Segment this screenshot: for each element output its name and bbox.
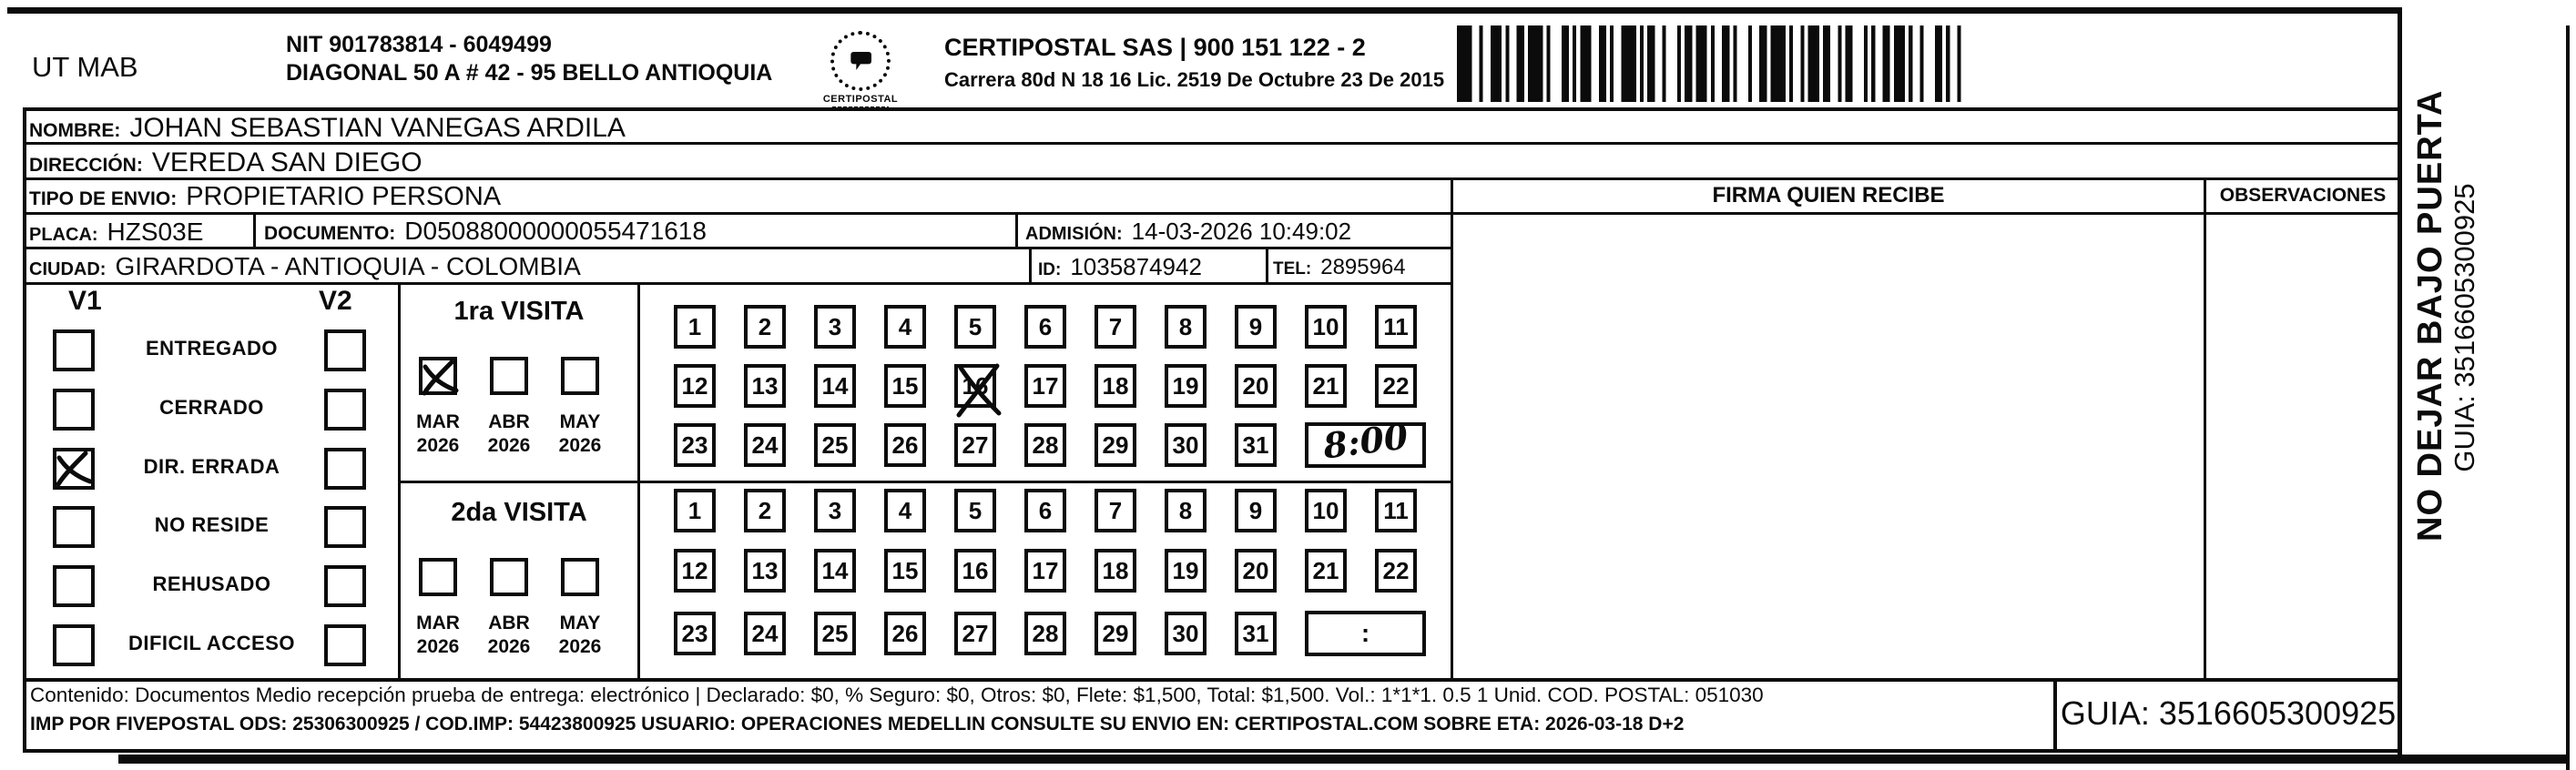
side-note: NO DEJAR BAJO PUERTA GUIA: 3516605300925 <box>2412 114 2494 542</box>
day-box-visit1-11: 11 <box>1375 305 1417 349</box>
day-box-visit1-31: 31 <box>1235 423 1277 467</box>
documento-label: DOCUMENTO: <box>264 223 395 245</box>
day-box-visit2-24: 24 <box>744 612 786 655</box>
barcode-bar <box>1946 25 1950 102</box>
direccion-value: VEREDA SAN DIEGO <box>152 147 423 178</box>
observaciones-area <box>2206 215 2398 678</box>
month-option-visit2-mar: MAR2026 <box>410 558 466 656</box>
day-box-visit2-1: 1 <box>674 489 716 532</box>
barcode-bar <box>1919 25 1923 102</box>
barcode-bar <box>1733 25 1736 102</box>
month-checkbox-visit2-abr <box>490 558 528 596</box>
company-block: CERTIPOSTAL SAS | 900 151 122 - 2 Carrer… <box>944 33 1444 93</box>
visit-title-2da: 2da VISITA <box>401 498 637 528</box>
barcode-bar <box>1546 25 1550 102</box>
x-stroke <box>52 447 96 491</box>
day-box-visit1-10: 10 <box>1305 305 1347 349</box>
placa-field: PLACA: HZS03E <box>29 218 203 247</box>
top-scan-line <box>7 7 2402 14</box>
day-grid-2da: 1234567891011121314151617181920212223242… <box>640 481 1451 678</box>
id-value: 1035874942 <box>1070 253 1202 281</box>
tipo-envio-label: TIPO DE ENVIO: <box>29 188 177 210</box>
tel-label: TEL: <box>1273 259 1311 279</box>
handwritten-x-mark <box>52 447 96 495</box>
month-checkbox-visit1-abr <box>490 357 528 395</box>
day-box-visit2-28: 28 <box>1024 612 1066 655</box>
ciudad-divider <box>1029 247 1032 283</box>
barcode-bar <box>1695 25 1706 102</box>
v1-column-header: V1 <box>68 286 102 317</box>
month-checkbox-visit2-may <box>561 558 599 596</box>
sender-code-text: UT MAB <box>32 51 138 84</box>
observaciones-header: OBSERVACIONES <box>2206 185 2399 207</box>
checkbox-v2-cerrado <box>324 389 366 431</box>
month-option-visit1-abr: ABR2026 <box>481 357 537 455</box>
barcode-bar <box>1599 25 1606 102</box>
admision-label: ADMISIÓN: <box>1025 224 1123 245</box>
documento-field: DOCUMENTO: D05088000000055471618 <box>264 217 707 246</box>
status-label-dir-errada: DIR. ERRADA <box>100 446 323 488</box>
day-box-visit2-5: 5 <box>954 489 996 532</box>
day-box-visit2-19: 19 <box>1165 549 1207 593</box>
visit-title-1ra: 1ra VISITA <box>401 297 637 327</box>
barcode-bar <box>1580 25 1591 102</box>
row-line-4 <box>23 247 1451 249</box>
checkbox-v1-cerrado <box>53 389 95 431</box>
guia-number-box: GUIA: 3516605300925 <box>2057 678 2399 749</box>
tipo-envio-value: PROPIETARIO PERSONA <box>186 182 501 212</box>
direccion-field: DIRECCIÓN: VEREDA SAN DIEGO <box>29 147 423 178</box>
day-box-visit1-1: 1 <box>674 305 716 349</box>
barcode <box>1457 25 1976 102</box>
month-label: ABR <box>481 412 537 431</box>
day-box-visit2-9: 9 <box>1235 489 1277 532</box>
day-box-visit1-8: 8 <box>1165 305 1207 349</box>
barcode-bar <box>1562 25 1569 102</box>
checkbox-v2-dir-errada <box>324 448 366 490</box>
barcode-bar <box>1882 25 1889 102</box>
nombre-label: NOMBRE: <box>29 120 120 142</box>
ciudad-label: CIUDAD: <box>29 259 106 280</box>
month-label: MAR <box>410 613 466 633</box>
company-name: CERTIPOSTAL SAS | 900 151 122 - 2 <box>944 33 1444 63</box>
x-stroke <box>418 356 462 400</box>
sender-code: UT MAB <box>32 51 138 84</box>
day-box-visit2-4: 4 <box>884 489 926 532</box>
barcode-bar <box>1480 25 1483 102</box>
month-year: 2026 <box>552 637 608 656</box>
barcode-bar <box>1807 25 1818 102</box>
footer-top-line <box>23 678 2401 682</box>
day-box-visit1-19: 19 <box>1165 364 1207 408</box>
barcode-bar <box>1640 25 1644 102</box>
day-box-visit1-4: 4 <box>884 305 926 349</box>
day-box-visit2-16: 16 <box>954 549 996 593</box>
day-box-visit2-3: 3 <box>814 489 856 532</box>
sender-nit: NIT 901783814 - 6049499 <box>286 31 772 59</box>
id-label: ID: <box>1038 260 1061 280</box>
documento-value: D05088000000055471618 <box>404 217 707 246</box>
logo-glyph <box>842 43 879 79</box>
barcode-bar <box>1573 25 1576 102</box>
day-box-visit1-24: 24 <box>744 423 786 467</box>
day-box-visit1-27: 27 <box>954 423 996 467</box>
day-cross-mark <box>950 360 1008 425</box>
day-box-visit2-14: 14 <box>814 549 856 593</box>
firma-quien-recibe-header: FIRMA QUIEN RECIBE <box>1453 183 2204 208</box>
documento-divider <box>1015 212 1018 248</box>
status-row-rehusado: REHUSADO <box>23 563 398 607</box>
table-bottom-border <box>23 749 2401 753</box>
status-row-cerrado: CERRADO <box>23 387 398 431</box>
day-box-visit1-15: 15 <box>884 364 926 408</box>
day-box-visit2-17: 17 <box>1024 549 1066 593</box>
month-option-visit1-mar: MAR2026 <box>410 357 466 455</box>
status-label-entregado: ENTREGADO <box>100 328 323 370</box>
day-box-visit2-31: 31 <box>1235 612 1277 655</box>
month-checkbox-visit1-mar <box>419 357 457 395</box>
month-label: MAY <box>552 412 608 431</box>
barcode-bar <box>1610 25 1614 102</box>
checkbox-v2-rehusado <box>324 565 366 607</box>
barcode-bar <box>1838 25 1841 102</box>
day-box-visit2-15: 15 <box>884 549 926 593</box>
day-box-visit1-29: 29 <box>1095 423 1136 467</box>
barcode-bar <box>1894 25 1905 102</box>
barcode-bar <box>1845 25 1852 102</box>
barcode-bar <box>1871 25 1875 102</box>
day-box-visit1-6: 6 <box>1024 305 1066 349</box>
day-box-visit1-7: 7 <box>1095 305 1136 349</box>
side-note-warning: NO DEJAR BAJO PUERTA <box>2412 114 2449 542</box>
day-box-visit2-20: 20 <box>1235 549 1277 593</box>
direccion-label: DIRECCIÓN: <box>29 155 143 177</box>
day-box-visit1-13: 13 <box>744 364 786 408</box>
status-row-dir-errada: DIR. ERRADA <box>23 446 398 490</box>
day-box-visit1-21: 21 <box>1305 364 1347 408</box>
day-box-visit1-9: 9 <box>1235 305 1277 349</box>
barcode-bar <box>1800 25 1804 102</box>
month-checkbox-visit1-may <box>561 357 599 395</box>
admision-field: ADMISIÓN: 14-03-2026 10:49:02 <box>1025 218 1351 246</box>
sender-address: DIAGONAL 50 A # 42 - 95 BELLO ANTIOQUIA <box>286 59 772 87</box>
day-box-visit2-13: 13 <box>744 549 786 593</box>
barcode-bar <box>1621 25 1635 102</box>
barcode-bar <box>1457 25 1471 102</box>
day-box-visit2-12: 12 <box>674 549 716 593</box>
checkbox-v1-no-reside <box>53 506 95 548</box>
day-box-visit2-8: 8 <box>1165 489 1207 532</box>
ciudad-field: CIUDAD: GIRARDOTA - ANTIOQUIA - COLOMBIA <box>29 252 581 281</box>
day-box-visit2-25: 25 <box>814 612 856 655</box>
checkbox-v1-dir-errada <box>53 448 95 490</box>
day-grid-1ra: 1234567891011121314151617181920212223242… <box>640 282 1451 481</box>
status-row-no-reside: NO RESIDE <box>23 504 398 548</box>
checkbox-v2-entregado <box>324 329 366 371</box>
day-box-visit1-30: 30 <box>1165 423 1207 467</box>
day-box-visit2-11: 11 <box>1375 489 1417 532</box>
firma-signature-area <box>1453 215 2204 678</box>
handwritten-x-mark <box>418 356 462 404</box>
day-box-visit1-28: 28 <box>1024 423 1066 467</box>
day-box-visit1-12: 12 <box>674 364 716 408</box>
nombre-value: JOHAN SEBASTIAN VANEGAS ARDILA <box>129 113 626 144</box>
day-box-visit2-6: 6 <box>1024 489 1066 532</box>
day-box-visit2-21: 21 <box>1305 549 1347 593</box>
barcode-bar <box>1748 25 1752 102</box>
shipping-label-scan: UT MAB NIT 901783814 - 6049499 DIAGONAL … <box>0 0 2576 770</box>
barcode-bar <box>1759 25 1767 102</box>
month-label: MAR <box>410 412 466 431</box>
barcode-bar <box>1685 25 1692 102</box>
day-box-visit2-2: 2 <box>744 489 786 532</box>
ciudad-value: GIRARDOTA - ANTIOQUIA - COLOMBIA <box>115 252 580 281</box>
month-option-visit2-abr: ABR2026 <box>481 558 537 656</box>
status-panel: V1 V2 ENTREGADOCERRADODIR. ERRADANO RESI… <box>23 282 398 678</box>
certipostal-logo: CERTIPOSTAL <box>821 31 900 110</box>
status-label-no-reside: NO RESIDE <box>100 504 323 546</box>
barcode-bar <box>1711 25 1715 102</box>
barcode-bar <box>1823 25 1830 102</box>
logo-caption: CERTIPOSTAL <box>821 94 900 105</box>
day-box-visit2-23: 23 <box>674 612 716 655</box>
status-label-rehusado: REHUSADO <box>100 563 323 605</box>
barcode-bar <box>1864 25 1868 102</box>
status-label-cerrado: CERRADO <box>100 387 323 429</box>
id-field: ID: 1035874942 <box>1038 253 1202 281</box>
footer-imp-line: IMP POR FIVEPOSTAL ODS: 25306300925 / CO… <box>30 714 2042 735</box>
barcode-bar <box>1491 25 1502 102</box>
visit-panel-2da: 2da VISITA MAR2026ABR2026MAY2026 <box>401 483 637 678</box>
day-box-visit1-17: 17 <box>1024 364 1066 408</box>
checkbox-v2-no-reside <box>324 506 366 548</box>
month-year: 2026 <box>410 436 466 455</box>
right-scan-edge <box>2566 25 2570 770</box>
barcode-bar <box>1789 25 1793 102</box>
day-box-visit1-16: 16 <box>954 364 996 408</box>
day-box-visit1-18: 18 <box>1095 364 1136 408</box>
label-right-border <box>2398 9 2402 755</box>
month-checkbox-visit2-mar <box>419 558 457 596</box>
barcode-bar <box>1677 25 1681 102</box>
checkbox-v2-dificil-acceso <box>324 624 366 666</box>
day-box-visit1-3: 3 <box>814 305 856 349</box>
placa-value: HZS03E <box>107 218 204 247</box>
day-box-visit1-20: 20 <box>1235 364 1277 408</box>
checkbox-v1-rehusado <box>53 565 95 607</box>
nombre-field: NOMBRE: JOHAN SEBASTIAN VANEGAS ARDILA <box>29 113 626 144</box>
barcode-bar <box>1663 25 1666 102</box>
table-top-border <box>23 107 2401 111</box>
cross-stroke <box>950 360 1008 419</box>
visit-panel-1ra: 1ra VISITA MAR2026ABR2026MAY2026 <box>401 282 637 481</box>
day-box-visit1-25: 25 <box>814 423 856 467</box>
day-box-visit1-22: 22 <box>1375 364 1417 408</box>
checkbox-v1-entregado <box>53 329 95 371</box>
day-box-visit2-10: 10 <box>1305 489 1347 532</box>
placa-label: PLACA: <box>29 225 98 246</box>
status-label-dificil-acceso: DIFICIL ACCESO <box>100 623 323 664</box>
month-option-visit2-may: MAY2026 <box>552 558 608 656</box>
day-box-visit2-7: 7 <box>1095 489 1136 532</box>
barcode-bar <box>1770 25 1785 102</box>
day-box-visit2-18: 18 <box>1095 549 1136 593</box>
day-box-visit1-23: 23 <box>674 423 716 467</box>
month-label: MAY <box>552 613 608 633</box>
bottom-scan-line <box>118 755 2570 764</box>
placa-divider <box>253 212 256 248</box>
month-label: ABR <box>481 613 537 633</box>
barcode-bar <box>1722 25 1729 102</box>
barcode-bar <box>1935 25 1942 102</box>
day-box-visit1-2: 2 <box>744 305 786 349</box>
admision-value: 14-03-2026 10:49:02 <box>1132 218 1351 246</box>
status-row-dificil-acceso: DIFICIL ACCESO <box>23 623 398 666</box>
day-box-visit2-26: 26 <box>884 612 926 655</box>
day-box-visit2-22: 22 <box>1375 549 1417 593</box>
barcode-bar <box>1528 25 1543 102</box>
month-year: 2026 <box>410 637 466 656</box>
footer-content-line: Contenido: Documentos Medio recepción pr… <box>30 684 2042 707</box>
day-box-visit2-30: 30 <box>1165 612 1207 655</box>
company-license: Carrera 80d N 18 16 Lic. 2519 De Octubre… <box>944 68 1444 93</box>
checkbox-v1-dificil-acceso <box>53 624 95 666</box>
handwritten-time: 8:00 <box>1320 415 1410 466</box>
day-box-visit1-26: 26 <box>884 423 926 467</box>
barcode-bar <box>1505 25 1509 102</box>
logo-ring <box>830 31 891 91</box>
barcode-bar <box>1957 25 1960 102</box>
tel-value: 2895964 <box>1320 255 1405 280</box>
month-year: 2026 <box>552 436 608 455</box>
time-colon: : <box>1361 619 1369 648</box>
barcode-bar <box>1517 25 1524 102</box>
day-box-visit2-27: 27 <box>954 612 996 655</box>
barcode-bar <box>1909 25 1912 102</box>
day-box-visit1-14: 14 <box>814 364 856 408</box>
sender-nit-block: NIT 901783814 - 6049499 DIAGONAL 50 A # … <box>286 31 772 86</box>
v2-column-header: V2 <box>319 286 352 317</box>
id-divider <box>1266 247 1268 283</box>
tipo-envio-field: TIPO DE ENVIO: PROPIETARIO PERSONA <box>29 182 501 212</box>
status-row-entregado: ENTREGADO <box>23 328 398 371</box>
tel-field: TEL: 2895964 <box>1273 255 1406 280</box>
time-box-visit2: : <box>1305 611 1426 656</box>
month-option-visit1-may: MAY2026 <box>552 357 608 455</box>
day-box-visit1-5: 5 <box>954 305 996 349</box>
day-box-visit2-29: 29 <box>1095 612 1136 655</box>
month-year: 2026 <box>481 637 537 656</box>
time-box-visit1: 8:00 <box>1305 422 1426 468</box>
side-note-guia: GUIA: 3516605300925 <box>2449 114 2479 542</box>
barcode-bar <box>1647 25 1655 102</box>
month-year: 2026 <box>481 436 537 455</box>
